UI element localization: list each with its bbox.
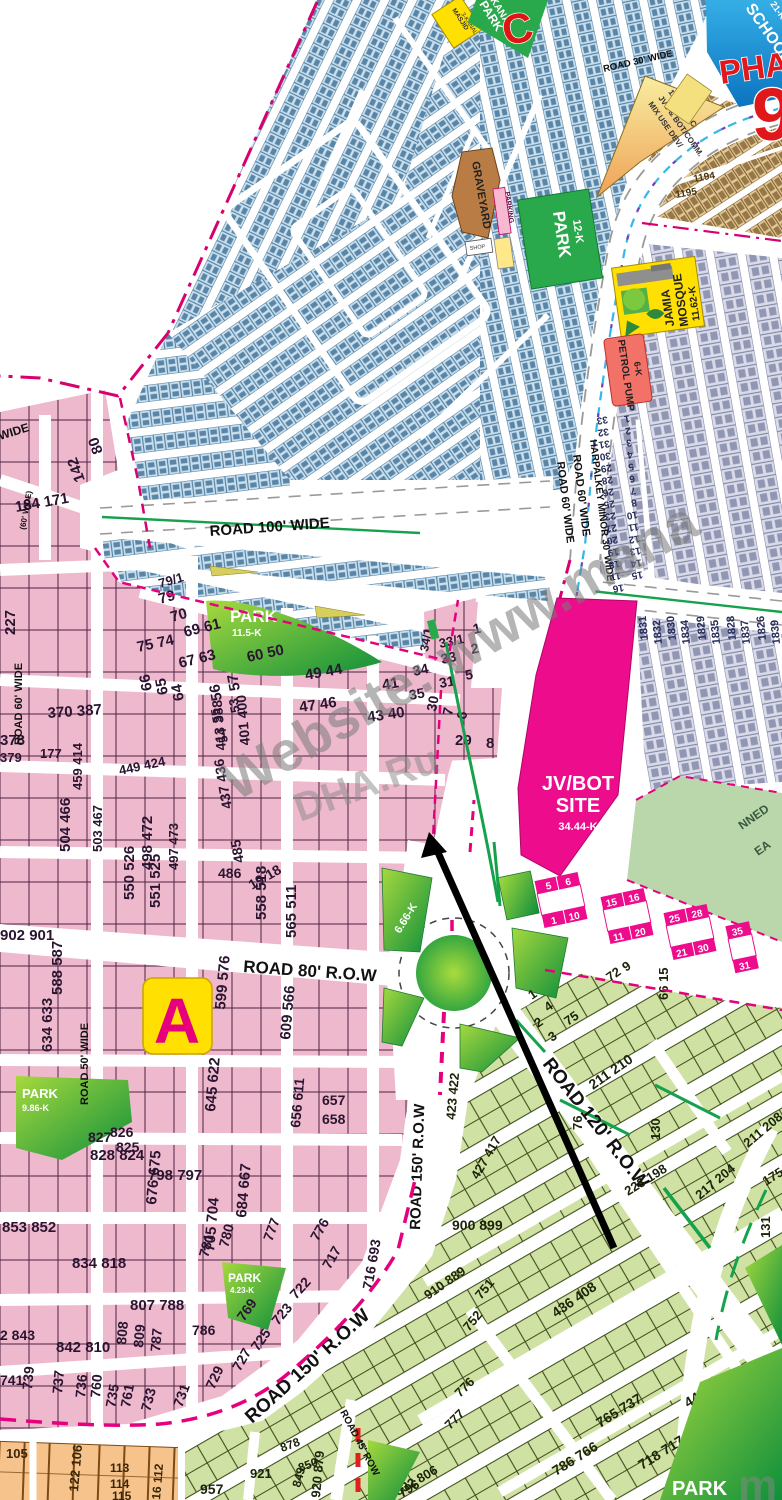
svg-text:34.44-K: 34.44-K [558, 821, 597, 833]
svg-text:1835: 1835 [709, 619, 723, 644]
svg-text:9.86-K: 9.86-K [22, 1103, 50, 1113]
svg-text:PARK: PARK [22, 1086, 58, 1101]
svg-text:902 901: 902 901 [0, 927, 54, 944]
svg-text:1832: 1832 [651, 619, 665, 644]
svg-text:807 788: 807 788 [130, 1297, 184, 1314]
svg-text:113: 113 [110, 1461, 130, 1475]
svg-text:565 511: 565 511 [283, 885, 300, 938]
svg-text:66 15: 66 15 [656, 967, 671, 1000]
svg-text:739: 739 [19, 1365, 37, 1390]
svg-text:787: 787 [147, 1327, 165, 1352]
svg-text:658: 658 [322, 1111, 346, 1127]
svg-text:4.23-K: 4.23-K [230, 1286, 254, 1295]
svg-text:1834: 1834 [679, 618, 693, 644]
svg-text:JV/BOT: JV/BOT [542, 773, 614, 795]
svg-text:459 414: 459 414 [70, 742, 85, 790]
svg-text:2 843: 2 843 [0, 1327, 35, 1343]
svg-text:550 526: 550 526 [121, 846, 138, 900]
svg-text:1839: 1839 [769, 619, 782, 644]
svg-text:957: 957 [200, 1481, 224, 1497]
svg-text:760: 760 [87, 1373, 105, 1398]
svg-text:558 518: 558 518 [253, 866, 270, 920]
svg-text:1830: 1830 [665, 615, 679, 640]
svg-text:115: 115 [112, 1489, 132, 1500]
svg-text:737: 737 [49, 1369, 67, 1394]
svg-text:SITE: SITE [556, 795, 600, 817]
svg-text:827: 827 [88, 1129, 112, 1145]
svg-text:8: 8 [486, 735, 494, 752]
svg-text:900 899: 900 899 [452, 1217, 503, 1233]
svg-text:809: 809 [130, 1323, 148, 1348]
svg-text:177: 177 [40, 746, 62, 761]
svg-text:57: 57 [224, 673, 244, 692]
svg-text:786: 786 [192, 1322, 216, 1338]
svg-text:227: 227 [2, 610, 19, 635]
svg-text:551 525: 551 525 [147, 854, 164, 908]
svg-text:1831: 1831 [637, 615, 651, 640]
svg-text:486: 486 [218, 865, 242, 881]
svg-text:105: 105 [6, 1446, 28, 1461]
svg-text:11.5-K: 11.5-K [232, 628, 262, 639]
svg-text:A: A [154, 985, 200, 1057]
svg-text:798 797: 798 797 [148, 1167, 202, 1184]
svg-text:ROAD 60' WIDE: ROAD 60' WIDE [13, 663, 25, 745]
svg-text:m: m [738, 1461, 777, 1500]
svg-text:853 852: 853 852 [2, 1219, 56, 1236]
svg-text:634 633: 634 633 [39, 998, 56, 1052]
svg-text:808: 808 [113, 1320, 131, 1345]
svg-text:1837: 1837 [739, 619, 753, 644]
svg-text:1828: 1828 [725, 615, 739, 640]
svg-text:130: 130 [648, 1118, 663, 1140]
svg-text:503 467: 503 467 [90, 805, 105, 852]
svg-text:1826: 1826 [755, 615, 769, 640]
svg-text:ROAD 50' WIDE: ROAD 50' WIDE [79, 1023, 91, 1105]
svg-text:657: 657 [322, 1092, 346, 1108]
svg-text:76: 76 [570, 1116, 585, 1130]
svg-text:56: 56 [206, 683, 226, 702]
svg-text:921: 921 [250, 1466, 272, 1481]
svg-text:588 587: 588 587 [49, 941, 66, 995]
svg-text:1829: 1829 [695, 615, 709, 640]
svg-text:6-K: 6-K [632, 361, 644, 377]
svg-text:131: 131 [758, 1216, 773, 1238]
svg-text:PARK: PARK [230, 607, 278, 626]
svg-text:825: 825 [116, 1139, 140, 1155]
svg-text:826: 826 [110, 1124, 134, 1140]
svg-text:379: 379 [0, 750, 22, 765]
svg-text:842 810: 842 810 [56, 1339, 110, 1356]
svg-text:504 466: 504 466 [57, 798, 74, 852]
svg-text:PARK: PARK [672, 1478, 728, 1500]
svg-text:PARK: PARK [228, 1271, 261, 1285]
svg-text:9: 9 [752, 73, 782, 156]
svg-text:834 818: 834 818 [72, 1255, 126, 1272]
svg-text:497 473: 497 473 [166, 823, 181, 870]
